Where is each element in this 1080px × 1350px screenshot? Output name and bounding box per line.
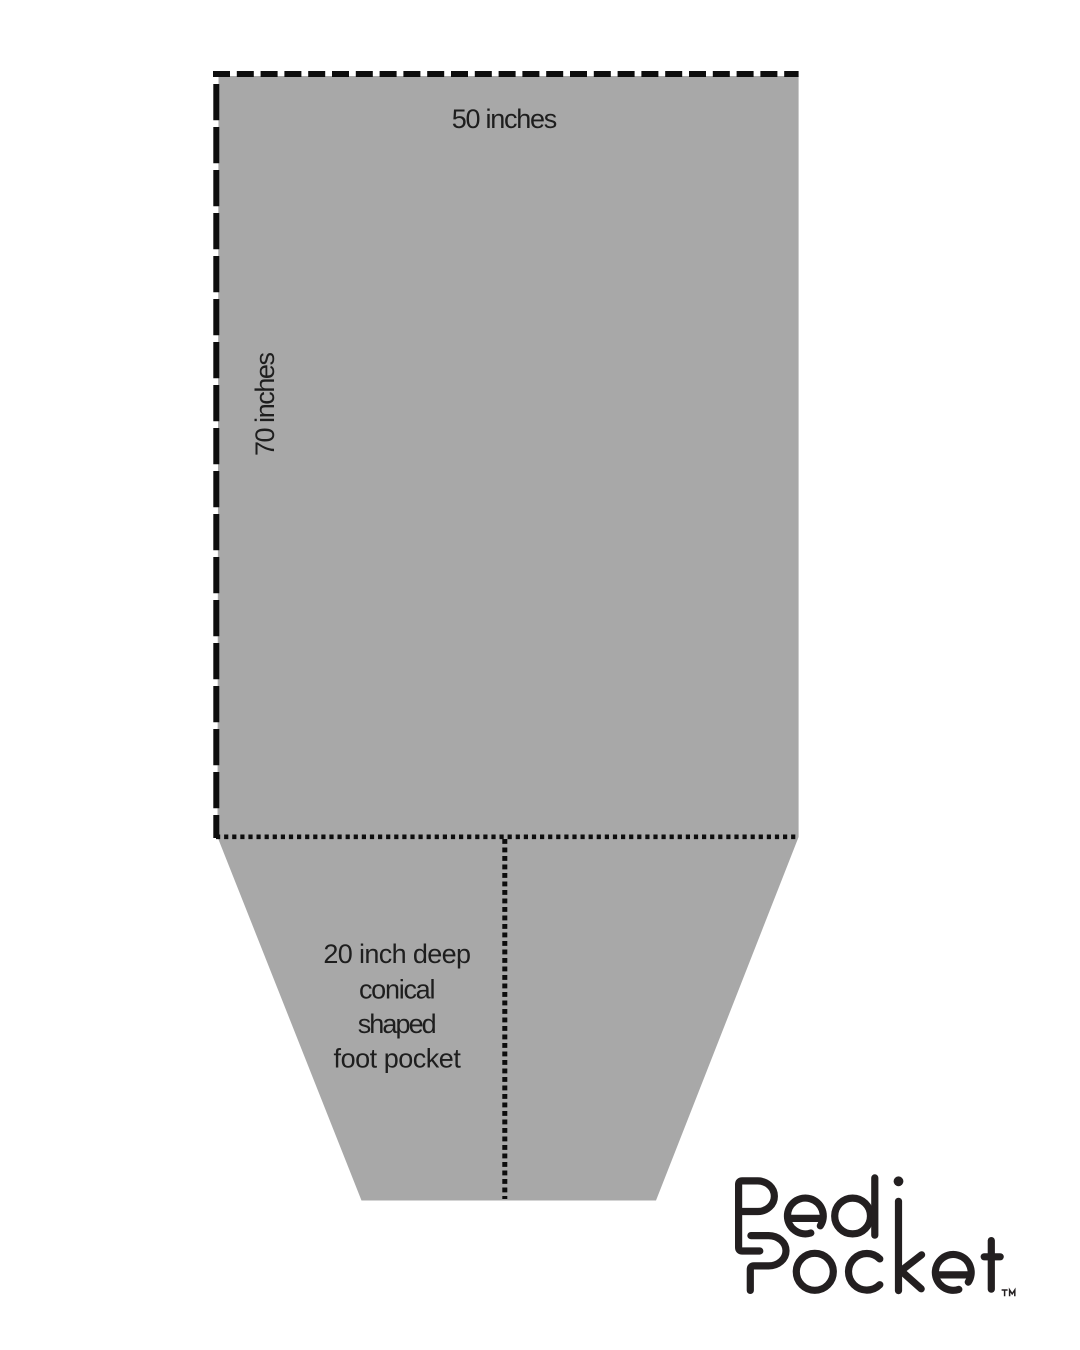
svg-text:shaped: shaped — [358, 1009, 437, 1039]
svg-text:50 inches: 50 inches — [452, 104, 558, 134]
svg-text:20 inch deep: 20 inch deep — [323, 939, 471, 969]
svg-text:conical: conical — [359, 974, 436, 1004]
svg-text:70 inches: 70 inches — [250, 352, 280, 456]
svg-text:foot pocket: foot pocket — [334, 1044, 462, 1074]
